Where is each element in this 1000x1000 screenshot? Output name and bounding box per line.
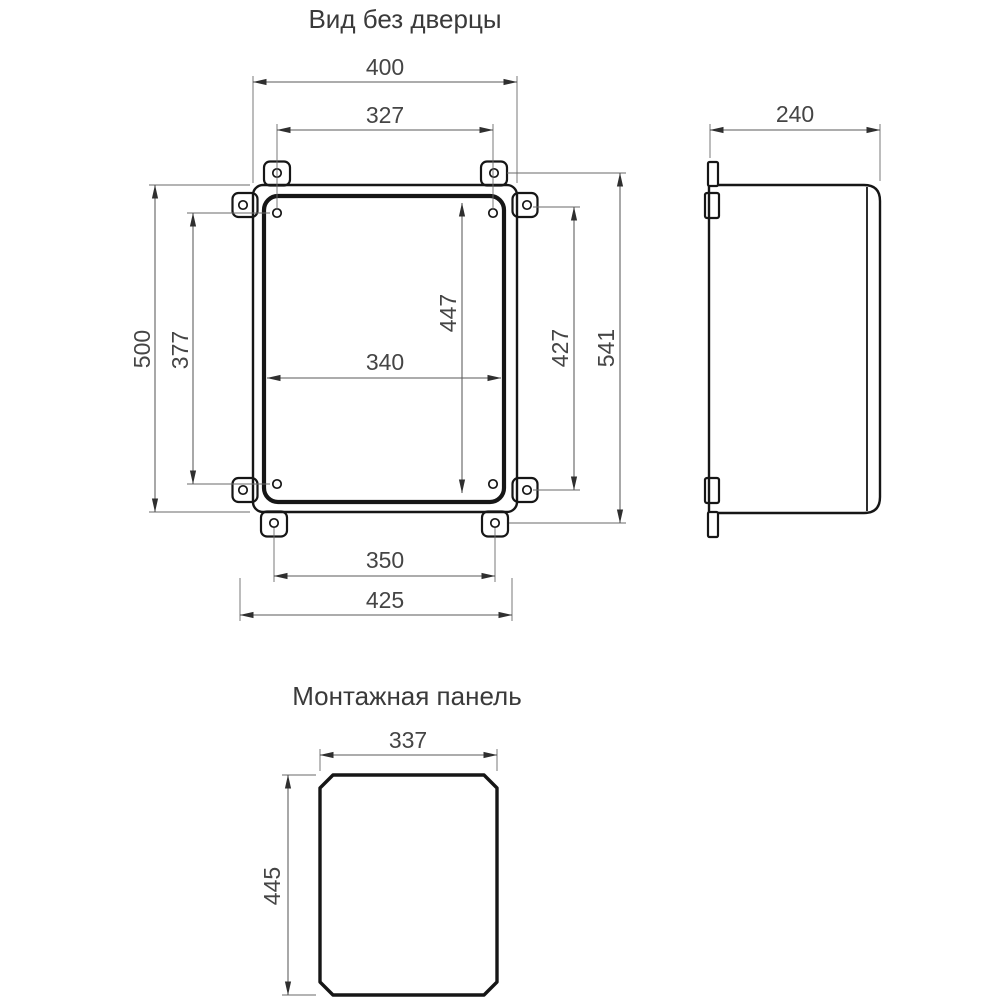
dim-panel-plate-height-extensions xyxy=(282,775,316,995)
dim-panel-plate-width: 337 xyxy=(320,727,497,771)
dim-overall-width: 425 xyxy=(240,578,512,621)
side-body-outline xyxy=(718,185,880,513)
side-view: 240 xyxy=(705,101,880,537)
dim-panel-holes-vertical: 447 xyxy=(435,203,462,493)
dim-depth-extensions xyxy=(710,124,880,181)
mounting-panel-title: Монтажная панель xyxy=(292,681,522,711)
dim-overall-height-label: 541 xyxy=(593,329,619,367)
dim-box-height-extensions xyxy=(149,185,250,512)
mounting-panel-shape xyxy=(320,775,497,995)
dim-right-holes-spacing: 427 xyxy=(533,207,580,490)
tab-hole-left-upper xyxy=(239,201,247,209)
tab-hole-right-upper xyxy=(523,201,531,209)
tab-hole-right-lower xyxy=(523,486,531,494)
dim-panel-holes-label: 447 xyxy=(435,294,461,332)
dim-box-height-label: 500 xyxy=(129,330,155,368)
side-lateral-tab-lower xyxy=(705,478,719,503)
dim-left-holes-label: 377 xyxy=(167,331,193,369)
side-top-tab xyxy=(708,162,718,186)
dim-top-holes-spacing: 327 xyxy=(277,102,493,209)
dim-left-holes-spacing: 377 xyxy=(167,213,270,484)
dim-overall-width-label: 425 xyxy=(366,587,404,613)
dim-panel-plate-width-label: 337 xyxy=(389,727,427,753)
tab-hole-bottom-right xyxy=(491,519,499,527)
technical-drawing-page: Вид без дверцы 400 xyxy=(0,0,1000,1000)
dim-box-width-label: 400 xyxy=(366,54,404,80)
tab-hole-bottom-left xyxy=(270,519,278,527)
dim-bottom-holes-label: 350 xyxy=(366,547,404,573)
mounting-panel-view: Монтажная панель 337 445 xyxy=(259,681,522,995)
dim-panel-plate-height: 445 xyxy=(259,775,316,995)
panel-hole-top-left xyxy=(273,209,281,217)
dim-right-holes-label: 427 xyxy=(547,329,573,367)
side-bottom-tab xyxy=(708,512,718,537)
dim-depth-label: 240 xyxy=(776,101,814,127)
tab-hole-top-right xyxy=(490,169,498,177)
panel-hole-bottom-left xyxy=(273,480,281,488)
dim-panel-plate-height-label: 445 xyxy=(259,867,285,905)
enclosure-drawing: Вид без дверцы 400 xyxy=(0,0,1000,1000)
panel-hole-bottom-right xyxy=(489,480,497,488)
dim-top-holes-label: 327 xyxy=(366,102,404,128)
panel-hole-top-right xyxy=(489,209,497,217)
dim-bottom-holes-spacing: 350 xyxy=(274,528,495,582)
dim-left-holes-extensions xyxy=(187,213,270,484)
front-view: Вид без дверцы 400 xyxy=(129,4,626,621)
dim-panel-width: 340 xyxy=(267,349,501,378)
dim-depth: 240 xyxy=(710,101,880,181)
side-lateral-tab-upper xyxy=(705,193,719,218)
tab-hole-left-lower xyxy=(239,486,247,494)
dim-panel-width-label: 340 xyxy=(366,349,404,375)
front-view-title: Вид без дверцы xyxy=(308,4,501,34)
